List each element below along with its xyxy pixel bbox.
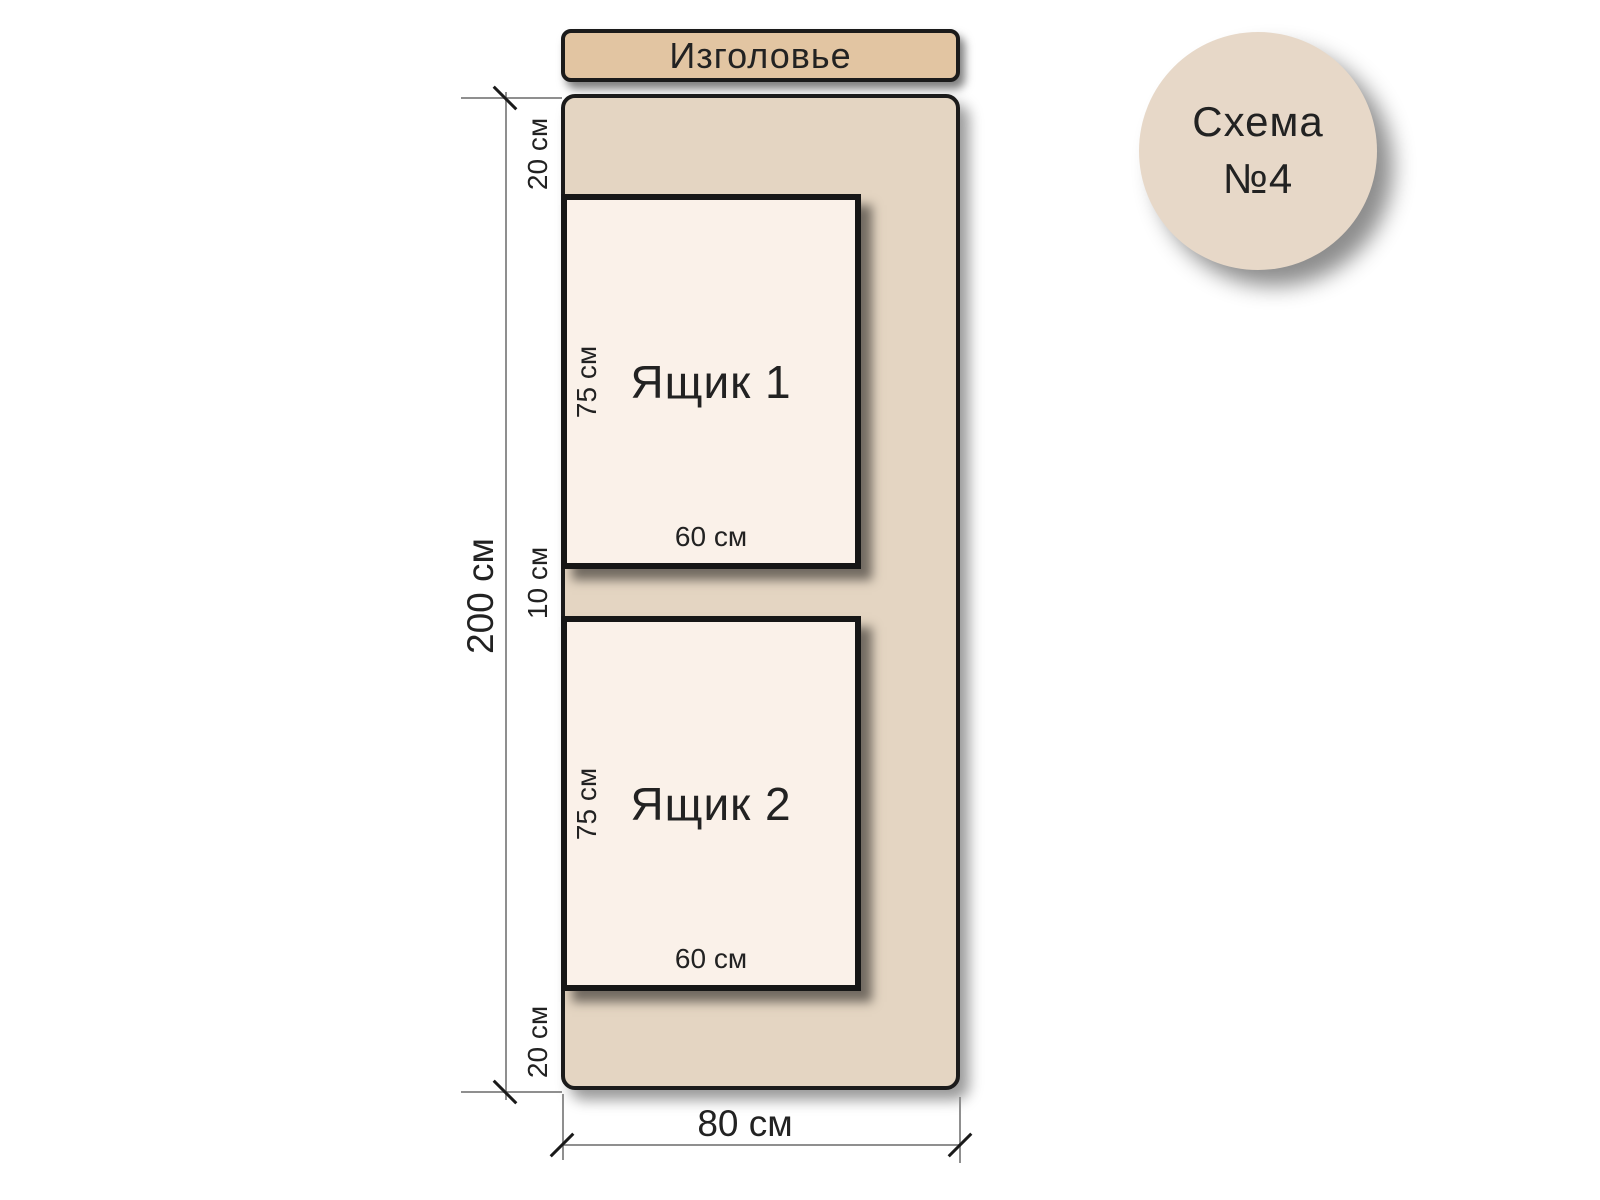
bed-scheme-diagram: Изголовье Ящик 1 75 см 60 см Ящик 2 75 с… bbox=[0, 0, 1600, 1200]
headboard-label: Изголовье bbox=[669, 35, 851, 77]
total-height-label: 200 см bbox=[460, 538, 502, 654]
headboard-plate: Изголовье bbox=[561, 29, 960, 82]
top-margin-label: 20 см bbox=[522, 118, 554, 190]
right-extension-line bbox=[959, 1097, 961, 1163]
drawer-1-height-label: 75 см bbox=[571, 345, 603, 417]
top-extension-line bbox=[461, 97, 562, 99]
scheme-badge-line2: №4 bbox=[1223, 151, 1293, 208]
vertical-dimension-line bbox=[505, 92, 507, 1100]
total-width-label: 80 см bbox=[697, 1103, 792, 1145]
left-extension-line bbox=[562, 1094, 564, 1160]
drawer-1-box: Ящик 1 75 см 60 см bbox=[561, 194, 861, 569]
drawer-2-label: Ящик 2 bbox=[630, 777, 791, 831]
drawer-1-width-label: 60 см bbox=[675, 521, 747, 553]
drawer-2-box: Ящик 2 75 см 60 см bbox=[561, 616, 861, 991]
gap-label: 10 см bbox=[522, 547, 554, 619]
drawer-2-height-label: 75 см bbox=[571, 767, 603, 839]
scheme-badge-line1: Схема bbox=[1192, 94, 1323, 151]
drawer-1-label: Ящик 1 bbox=[630, 355, 791, 409]
bottom-extension-line bbox=[461, 1091, 562, 1093]
bottom-margin-label: 20 см bbox=[522, 1006, 554, 1078]
scheme-badge: Схема №4 bbox=[1139, 32, 1377, 270]
drawer-2-width-label: 60 см bbox=[675, 943, 747, 975]
